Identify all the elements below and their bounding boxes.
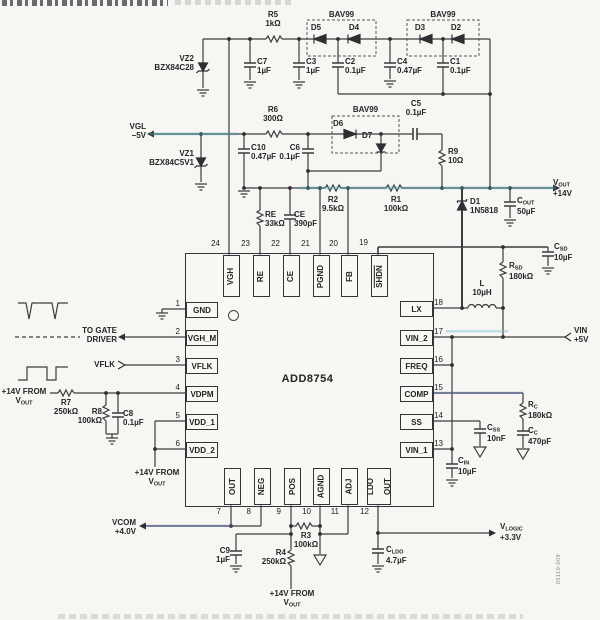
- ground-icon: [542, 268, 554, 274]
- val: 0.1µF: [399, 108, 433, 117]
- pin-number: 14: [434, 411, 448, 420]
- label-c2: C20.1µF: [345, 57, 375, 76]
- pin-label: LDO: [366, 478, 375, 495]
- pin-number: 1: [166, 299, 180, 308]
- pin-box-vgh: VGH: [223, 255, 240, 297]
- label-supply14-vdd: +14V FROMVOUT: [133, 468, 181, 488]
- val: 250kΩ: [248, 557, 286, 566]
- ground-icon: [244, 82, 256, 88]
- label-cc: CC470pF: [528, 426, 560, 446]
- capacitor-c1-icon: [437, 63, 449, 67]
- label-c1: C10.1µF: [450, 57, 480, 76]
- label-supply14-r4: +14V FROMVOUT: [267, 589, 317, 609]
- inductor-l-icon: [468, 305, 496, 308]
- pin-number: 15: [434, 383, 448, 392]
- pin-box-re: RE: [253, 255, 270, 297]
- pin-number: 24: [206, 239, 220, 248]
- label-r9: R910Ω: [448, 147, 474, 166]
- capacitor-c9-icon: [230, 551, 242, 555]
- label-r8: R8100kΩ: [68, 407, 102, 426]
- diode-d7-icon: [377, 144, 386, 152]
- pin-box-vdd2: VDD_2: [186, 442, 218, 458]
- resistor-r4-icon: [288, 550, 294, 566]
- pin-label: CE: [287, 270, 296, 281]
- net-name: VOUT: [0, 396, 48, 407]
- val: 10Ω: [448, 156, 474, 165]
- net-value: +5V: [574, 335, 600, 344]
- pin-label: VDD_2: [189, 446, 215, 455]
- ref: D4: [344, 23, 364, 32]
- ref: C4: [397, 57, 429, 66]
- val: 1µF: [257, 66, 287, 75]
- vin-input-chevron-icon: [565, 333, 571, 341]
- ref: D1: [470, 197, 504, 206]
- ground-triangle-icon: [314, 555, 326, 565]
- capacitor-cin-icon: [446, 464, 458, 468]
- net-name: VGL: [100, 122, 146, 131]
- val: 0.1µF: [450, 66, 480, 75]
- label-c8: C80.1µF: [123, 409, 153, 428]
- pin-label: COMP: [405, 390, 429, 399]
- capacitor-css-icon: [474, 429, 486, 433]
- pin-box-out: OUT: [224, 468, 241, 505]
- val: 1N5818: [470, 206, 504, 215]
- label-rc: RC180kΩ: [528, 400, 560, 420]
- capacitor-c10-icon: [238, 149, 250, 153]
- pin-number: 9: [267, 507, 281, 516]
- val: 470pF: [528, 437, 560, 446]
- net-name: VLOGIC: [500, 522, 542, 533]
- val: 300Ω: [256, 114, 290, 123]
- label-bav99-1: BAV99: [307, 10, 376, 19]
- ref: C9: [202, 546, 230, 555]
- label-r1: R1100kΩ: [378, 195, 414, 214]
- ref: R3: [288, 531, 324, 540]
- val: 9.5kΩ: [317, 204, 349, 213]
- pin-box-shdn: SHDN: [371, 255, 388, 297]
- ground-triangle-icon: [517, 449, 529, 459]
- label-cout: COUT50µF: [517, 196, 553, 216]
- pin-label: OUT: [228, 478, 237, 495]
- net-value: +4.0V: [94, 527, 136, 536]
- label-css: CSS10nF: [487, 423, 517, 443]
- ground-icon: [230, 566, 242, 572]
- resistor-r9-icon: [439, 150, 445, 166]
- resistor-rsd-icon: [500, 262, 506, 278]
- pin-label: SHDN: [375, 265, 384, 288]
- label-vz2: VZ2BZX84C28: [138, 54, 194, 73]
- label-bav99-3: BAV99: [332, 105, 399, 114]
- pin-number: 3: [166, 355, 180, 364]
- pin-label: AGND: [317, 475, 326, 499]
- gate-driver-arrow-icon: [118, 334, 125, 341]
- pin-number: 4: [166, 383, 180, 392]
- ref: CIN: [458, 456, 488, 467]
- pin-number: 18: [434, 298, 448, 307]
- ref: CLDO: [386, 545, 422, 556]
- ref: CSS: [487, 423, 517, 434]
- label-d7: D7: [362, 131, 378, 140]
- ref: CSD: [554, 242, 584, 253]
- capacitor-c3-icon: [293, 63, 305, 67]
- val: 0.47µF: [397, 66, 429, 75]
- label-r2: R29.5kΩ: [317, 195, 349, 214]
- document-code: 05110-009: [556, 529, 562, 609]
- pin-box-ss: SS: [400, 414, 433, 430]
- pin-box-lx: LX: [400, 301, 433, 317]
- pin-box-vgh-m: VGH_M: [186, 330, 218, 346]
- label-l: L10µH: [470, 279, 494, 298]
- pin-number: 19: [354, 238, 368, 247]
- label-c4: C40.47µF: [397, 57, 429, 76]
- pin-box-fb: FB: [341, 255, 358, 297]
- pin-box-adj: ADJ: [341, 468, 358, 505]
- pin-label: VDPM: [190, 390, 213, 399]
- resistor-r7-icon: [58, 390, 74, 396]
- net-value: +3.3V: [500, 533, 542, 542]
- label-d6: D6: [333, 119, 349, 128]
- val: 10nF: [487, 434, 517, 443]
- pin-box-comp: COMP: [400, 386, 433, 402]
- ground-icon: [504, 220, 516, 226]
- pin-label: FREQ: [405, 362, 427, 371]
- label-net-vout: VOUT+14V: [553, 178, 593, 198]
- label-c6: C60.1µF: [268, 143, 300, 162]
- pin-number: 20: [324, 239, 338, 248]
- ground-icon: [372, 566, 384, 572]
- label-cin: CIN10µF: [458, 456, 488, 476]
- val: BZX84C5V1: [134, 158, 194, 167]
- val: BZX84C28: [138, 63, 194, 72]
- pin-number: 22: [266, 239, 280, 248]
- pin-label: NEG: [258, 478, 267, 495]
- ground-icon: [446, 480, 458, 486]
- label-d5: D5: [306, 23, 326, 32]
- pin-box-pgnd: PGND: [313, 255, 330, 297]
- ground-icon: [197, 90, 209, 96]
- pin-label: VGH_M: [188, 334, 216, 343]
- net-name: VCOM: [94, 518, 136, 527]
- ref: C2: [345, 57, 375, 66]
- label-csd: CSD10µF: [554, 242, 584, 262]
- pin-label: VDD_1: [189, 418, 215, 427]
- vlogic-arrow-icon: [489, 530, 496, 537]
- ground-icon: [156, 313, 168, 319]
- label-rsd: RSD180kΩ: [509, 261, 541, 281]
- label-r3: R3100kΩ: [288, 531, 324, 550]
- val: 100kΩ: [68, 416, 102, 425]
- ref: R2: [317, 195, 349, 204]
- val: 10µF: [458, 467, 488, 476]
- ground-icon: [293, 82, 305, 88]
- pin-number: 17: [434, 327, 448, 336]
- capacitor-c7-icon: [244, 63, 256, 67]
- label-vz1: VZ1BZX84C5V1: [134, 149, 194, 168]
- pin-label: RE: [257, 270, 266, 281]
- vflk-square-waveform-icon: [18, 367, 68, 380]
- val: 33kΩ: [265, 219, 295, 228]
- label-d1: D11N5818: [470, 197, 504, 216]
- pin-label: VFLK: [192, 362, 213, 371]
- schottky-d1-icon: [458, 199, 467, 210]
- ref: BAV99: [307, 10, 376, 19]
- ref: VZ2: [138, 54, 194, 63]
- gate-pulse-waveform-icon: [18, 303, 68, 319]
- pin-number: 11: [325, 507, 339, 516]
- capacitor-csd-icon: [542, 252, 554, 256]
- resistor-r8-icon: [103, 405, 109, 421]
- label-r6: R6300Ω: [256, 105, 290, 124]
- pin-label: VIN_1: [405, 446, 427, 455]
- ref: CC: [528, 426, 560, 437]
- pin-box-gnd: GND: [186, 302, 218, 318]
- net-name: +14V FROM: [267, 589, 317, 598]
- ref: C5: [399, 99, 433, 108]
- val: 1kΩ: [256, 19, 290, 28]
- label-net-vcom: VCOM+4.0V: [94, 518, 136, 537]
- pin-number: 12: [355, 507, 369, 516]
- pin-box-vflk: VFLK: [186, 358, 218, 374]
- zener-vz1-icon: [195, 158, 208, 168]
- pin-label: FB: [344, 271, 353, 282]
- vflk-input-chevron-icon: [118, 361, 125, 369]
- label-net-vgl: VGL−5V: [100, 122, 146, 141]
- val: 10µF: [554, 253, 584, 262]
- pin-label: OUT: [383, 478, 392, 495]
- pin-box-ce: CE: [283, 255, 300, 297]
- net-name: VOUT: [553, 178, 593, 189]
- label-r4: R4250kΩ: [248, 548, 286, 567]
- ref: RSD: [509, 261, 541, 272]
- net-name: VFLK: [80, 360, 115, 369]
- pin-number: 21: [296, 239, 310, 248]
- resistor-r3-icon: [296, 523, 312, 529]
- pin-number: 7: [207, 507, 221, 516]
- diode-d6-icon: [344, 130, 356, 139]
- label-c3: C31µF: [306, 57, 336, 76]
- pin-box-vdpm: VDPM: [186, 386, 218, 402]
- pin-box-vdd1: VDD_1: [186, 414, 218, 430]
- vcom-arrow-icon: [139, 523, 146, 530]
- ground-icon: [384, 81, 396, 87]
- cropped-caption-artifact: [175, 0, 295, 5]
- label-d2: D2: [446, 23, 466, 32]
- ref: BAV99: [332, 105, 399, 114]
- label-d3: D3: [410, 23, 430, 32]
- label-c9: C91µF: [202, 546, 230, 565]
- val: 100kΩ: [378, 204, 414, 213]
- pin-number: 5: [166, 411, 180, 420]
- zener-vz2-icon: [197, 63, 210, 73]
- ref: VZ1: [134, 149, 194, 158]
- net-value: −5V: [100, 131, 146, 140]
- val: 1µF: [202, 555, 230, 564]
- net-name: VIN: [574, 326, 600, 335]
- val: 1µF: [306, 66, 336, 75]
- label-net-vlogic: VLOGIC+3.3V: [500, 522, 542, 542]
- val: 180kΩ: [509, 272, 541, 281]
- ref: D5: [306, 23, 326, 32]
- pin-label: VIN_2: [405, 334, 427, 343]
- capacitor-c4-icon: [384, 63, 396, 67]
- pin-label: LX: [411, 305, 421, 314]
- pin-box-neg: NEG: [254, 468, 271, 505]
- pin-number: 10: [297, 507, 311, 516]
- ref: R1: [378, 195, 414, 204]
- ref: D2: [446, 23, 466, 32]
- pin-label: ADJ: [345, 478, 354, 494]
- label-r5: R51kΩ: [256, 10, 290, 29]
- net-value: +14V: [553, 189, 593, 198]
- pin-box-vin1: VIN_1: [400, 442, 433, 458]
- label-to-gate-driver: TO GATEDRIVER: [73, 326, 117, 345]
- ground-icon: [195, 184, 207, 190]
- resistor-r5-icon: [266, 36, 282, 42]
- pin-box-vin2: VIN_2: [400, 330, 433, 346]
- ref: D7: [362, 131, 378, 140]
- net-name: +14V FROM: [133, 468, 181, 477]
- ref: R9: [448, 147, 474, 156]
- ground-icon: [106, 438, 118, 444]
- pin-label: SS: [411, 418, 422, 427]
- label-re: RE33kΩ: [265, 210, 295, 229]
- capacitor-c5-icon: [413, 128, 417, 140]
- cropped-caption-artifact: [2, 0, 168, 6]
- pin-label: VGH: [227, 267, 236, 284]
- val: 4.7µF: [386, 556, 422, 565]
- ref: C7: [257, 57, 287, 66]
- schematic-page: ADD8754 VGH RE CE PGND FB SHDN 24 23 22 …: [0, 0, 600, 620]
- label-net-vin: VIN+5V: [574, 326, 600, 345]
- label-cldo: CLDO4.7µF: [386, 545, 422, 565]
- ic-part-number: ADD8754: [255, 373, 360, 385]
- ref: L: [470, 279, 494, 288]
- net-name: DRIVER: [73, 335, 117, 344]
- pin-label: POS: [288, 478, 297, 495]
- cropped-caption-artifact: [58, 614, 523, 619]
- ref: COUT: [517, 196, 553, 207]
- ref: C3: [306, 57, 336, 66]
- val: 390pF: [294, 219, 324, 228]
- ref: D3: [410, 23, 430, 32]
- label-net-vflk: VFLK: [80, 360, 115, 369]
- resistor-r6-icon: [266, 131, 282, 137]
- pin1-indicator-icon: [228, 310, 239, 321]
- pin-box-pos: POS: [284, 468, 301, 505]
- ref: D6: [333, 119, 349, 128]
- ref: C6: [268, 143, 300, 152]
- pin-box-agnd: AGND: [313, 468, 330, 505]
- capacitor-c6-icon: [302, 149, 314, 153]
- ground-icon: [238, 191, 250, 197]
- ref: R4: [248, 548, 286, 557]
- net-name: +14V FROM: [0, 387, 48, 396]
- net-name: VOUT: [267, 598, 317, 609]
- val: 0.1µF: [345, 66, 375, 75]
- ref: RE: [265, 210, 295, 219]
- resistor-re-icon: [257, 210, 263, 226]
- capacitor-cout-icon: [504, 202, 516, 206]
- resistor-rc-icon: [520, 403, 526, 419]
- pin-number: 6: [166, 439, 180, 448]
- ref: RC: [528, 400, 560, 411]
- label-d4: D4: [344, 23, 364, 32]
- net-name: TO GATE: [73, 326, 117, 335]
- pin-number: 2: [166, 327, 180, 336]
- diode-d2-icon: [452, 35, 464, 44]
- net-name: VOUT: [133, 477, 181, 488]
- pin-box-ldo-out: LDOOUT: [367, 468, 391, 505]
- val: 0.1µF: [268, 152, 300, 161]
- pin-label: GND: [193, 306, 211, 315]
- ref: C8: [123, 409, 153, 418]
- ref: C1: [450, 57, 480, 66]
- val: 180kΩ: [528, 411, 560, 420]
- label-c7: C71µF: [257, 57, 287, 76]
- label-supply14-vdpm: +14V FROMVOUT: [0, 387, 48, 407]
- pin-number: 8: [237, 507, 251, 516]
- pin-label: PGND: [317, 264, 326, 287]
- ref: R5: [256, 10, 290, 19]
- val: 100kΩ: [288, 540, 324, 549]
- diode-d5-icon: [314, 35, 326, 44]
- ref: R6: [256, 105, 290, 114]
- val: 10µH: [470, 288, 494, 297]
- val: 0.1µF: [123, 418, 153, 427]
- capacitor-cldo-icon: [372, 549, 384, 553]
- diode-d4-icon: [348, 35, 360, 44]
- ref: R8: [68, 407, 102, 416]
- label-bav99-2: BAV99: [407, 10, 479, 19]
- pin-number: 16: [434, 355, 448, 364]
- ref: BAV99: [407, 10, 479, 19]
- pin-number: 13: [434, 439, 448, 448]
- diode-d3-icon: [420, 35, 432, 44]
- pin-number: 23: [236, 239, 250, 248]
- pin-box-freq: FREQ: [400, 358, 433, 374]
- val: 50µF: [517, 207, 553, 216]
- label-c5: C50.1µF: [399, 99, 433, 118]
